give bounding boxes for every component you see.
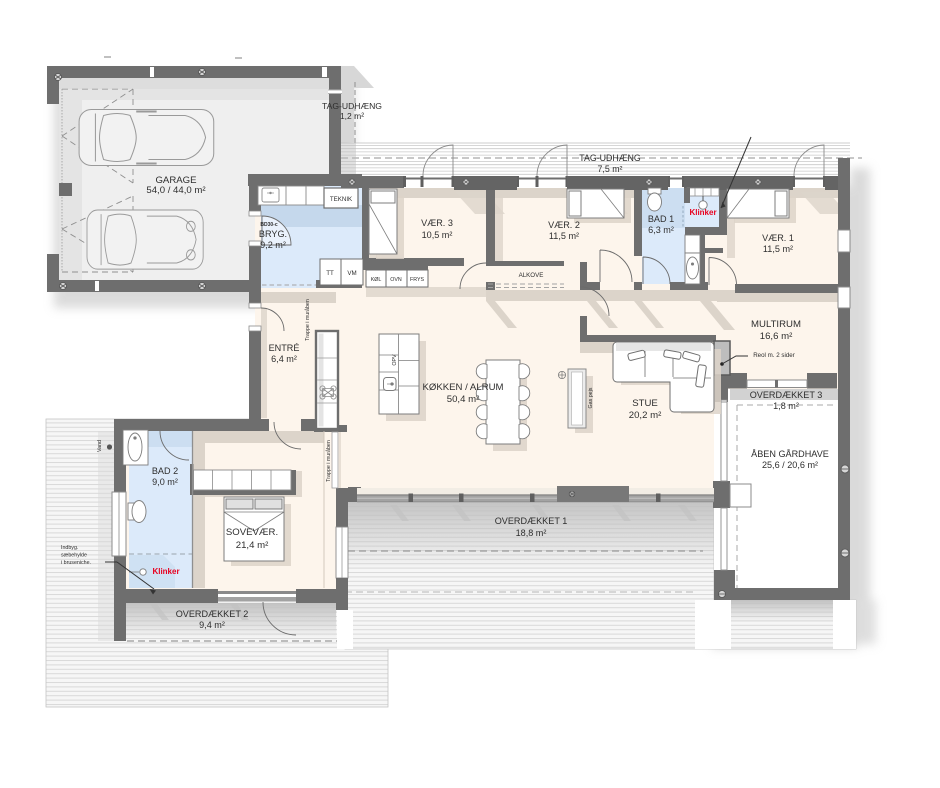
svg-text:11,5 m²: 11,5 m² [763,244,793,254]
svg-text:Klinker: Klinker [689,208,716,217]
svg-text:1,8 m²: 1,8 m² [773,401,799,411]
svg-text:KØL: KØL [371,277,382,283]
svg-text:20,2 m²: 20,2 m² [629,410,662,421]
svg-text:FRYS: FRYS [410,277,424,283]
svg-text:BAD 2: BAD 2 [152,466,178,476]
svg-text:SOVEVÆR.: SOVEVÆR. [226,527,278,538]
svg-text:TT: TT [326,270,334,277]
svg-text:OVN: OVN [390,277,402,283]
svg-text:OVERDÆKKET 3: OVERDÆKKET 3 [750,390,823,400]
svg-text:Trappe i muråben: Trappe i muråben [304,299,311,341]
svg-text:Vand: Vand [97,440,103,452]
svg-text:OVERDÆKKET 1: OVERDÆKKET 1 [495,516,568,526]
svg-text:6,4 m²: 6,4 m² [271,354,297,364]
svg-text:KØKKEN / ALRUM: KØKKEN / ALRUM [422,382,503,393]
svg-text:25,6 / 20,6 m²: 25,6 / 20,6 m² [762,460,818,470]
svg-text:TEKNIK: TEKNIK [330,196,353,203]
svg-text:VÆR. 2: VÆR. 2 [548,220,580,230]
svg-text:Reol m. 2 sider: Reol m. 2 sider [753,352,795,359]
svg-text:OPV: OPV [392,354,398,366]
svg-text:TAG-UDHÆNG: TAG-UDHÆNG [579,153,641,163]
svg-text:9,4 m²: 9,4 m² [199,620,225,630]
svg-text:Trappe i muråben: Trappe i muråben [325,440,332,482]
svg-text:54,0 / 44,0 m²: 54,0 / 44,0 m² [146,185,206,196]
svg-text:11,5 m²: 11,5 m² [549,231,579,241]
svg-text:sæbehylde: sæbehylde [61,553,87,559]
svg-text:9,2 m²: 9,2 m² [260,240,286,250]
svg-text:21,4 m²: 21,4 m² [236,540,269,551]
svg-text:BAD 1: BAD 1 [648,214,674,224]
svg-text:BRYG.: BRYG. [259,229,287,239]
svg-text:18,8 m²: 18,8 m² [516,528,547,538]
svg-text:Klinker: Klinker [152,567,179,576]
svg-text:OVERDÆKKET 2: OVERDÆKKET 2 [176,609,249,619]
svg-text:Indbyg.: Indbyg. [61,545,78,551]
svg-text:ÅBEN GÅRDHAVE: ÅBEN GÅRDHAVE [751,449,829,459]
svg-text:ALKOVE: ALKOVE [519,272,544,279]
svg-text:TAG-UDHÆNG: TAG-UDHÆNG [322,101,382,111]
svg-text:VÆR. 3: VÆR. 3 [421,218,453,228]
svg-text:VM: VM [347,270,356,277]
svg-text:16,6 m²: 16,6 m² [760,331,793,342]
svg-text:Gas pejs: Gas pejs [588,387,594,408]
svg-text:VÆR. 1: VÆR. 1 [762,233,794,243]
svg-text:1,2 m²: 1,2 m² [340,111,364,121]
svg-text:7,5 m²: 7,5 m² [598,164,623,174]
svg-text:MULTIRUM: MULTIRUM [751,319,801,330]
svg-text:BD30-c: BD30-c [260,222,277,228]
svg-text:i bruseniche.: i bruseniche. [61,560,91,566]
svg-text:9,0 m²: 9,0 m² [152,477,178,487]
svg-text:10,5 m²: 10,5 m² [422,230,453,240]
svg-text:ENTRÉ: ENTRÉ [269,343,300,353]
svg-text:STUE: STUE [632,398,658,409]
svg-text:6,3 m²: 6,3 m² [648,225,674,235]
svg-text:50,4 m²: 50,4 m² [447,394,480,405]
